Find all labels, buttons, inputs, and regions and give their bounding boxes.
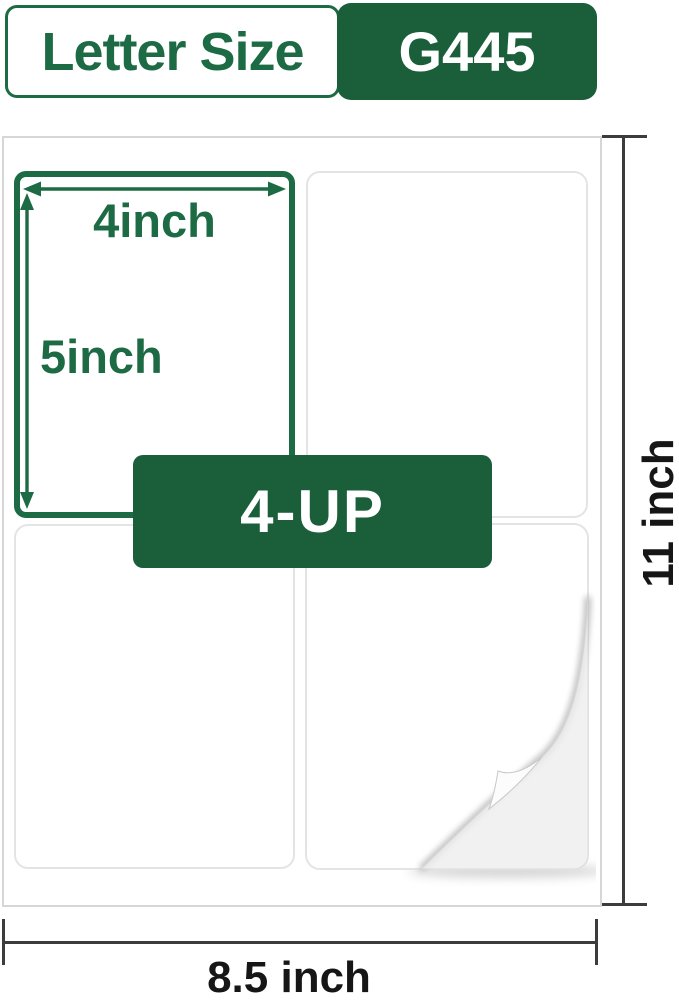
page-height-tick-top xyxy=(602,135,647,138)
page-width-line xyxy=(3,941,597,944)
product-diagram: Letter Size G445 xyxy=(0,0,679,1001)
page-width-text: 8.5 inch xyxy=(169,953,409,1001)
page-height-text: 11 inch xyxy=(637,433,679,593)
label-width-text: 4inch xyxy=(20,193,289,248)
page-width-tick-left xyxy=(2,919,5,965)
paper-size-label: Letter Size xyxy=(41,21,303,83)
label-bottom-left xyxy=(14,524,295,869)
page-height-line xyxy=(622,135,625,906)
layout-badge-label: 4-UP xyxy=(240,477,385,546)
model-badge: G445 xyxy=(337,3,597,100)
layout-badge: 4-UP xyxy=(133,455,492,568)
label-height-text: 5inch xyxy=(40,329,163,384)
paper-size-pill: Letter Size xyxy=(5,5,340,98)
model-number-label: G445 xyxy=(399,19,536,84)
page-height-tick-bottom xyxy=(602,903,647,906)
label-peeling xyxy=(296,514,596,889)
page-width-tick-right xyxy=(595,919,598,965)
